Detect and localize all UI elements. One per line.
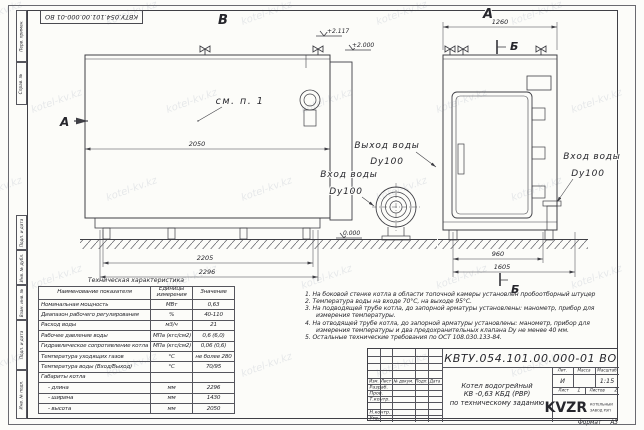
water-inlet-label: Вход воды	[320, 170, 377, 180]
control-box	[527, 76, 551, 90]
burner-flange	[372, 183, 420, 240]
tb-mass-value	[573, 374, 595, 387]
spec-table: Техническая характеристика Наименование …	[38, 277, 234, 414]
spec-header-row: Наименование показателя Единицы измерени…	[39, 287, 235, 300]
spec-cell: Температура воды (Вход/Выход)	[39, 362, 151, 372]
spec-col-header: Единицы измерения	[151, 287, 193, 300]
spec-cell: Гидравлическое сопротивление котла	[39, 341, 151, 351]
water-inlet-right-dn: Dy100	[571, 169, 604, 179]
flue-elbow	[300, 90, 320, 110]
dim-1260: 1260	[492, 18, 509, 26]
doc-number: КВТУ.054.101.00.000-01 ВО	[442, 349, 619, 367]
elevation-zero-value: 0.000	[343, 230, 360, 237]
tb-role: Утв.	[368, 416, 387, 421]
spec-cell	[193, 372, 235, 382]
spec-row: - ширинамм1430	[39, 393, 235, 403]
spec-cell: 2296	[193, 383, 235, 393]
spec-cell: Диапазон рабочего регулирования	[39, 310, 151, 320]
spec-row: Температура воды (Вход/Выход)°С70/95	[39, 362, 235, 372]
spec-row: - длинамм2296	[39, 383, 235, 393]
spec-cell: Рабочее давление воды	[39, 331, 151, 341]
tb-role: Н.контр.	[368, 410, 387, 415]
spec-cell: 70/95	[193, 362, 235, 372]
tb-scale-value: 1:15	[595, 374, 619, 387]
spec-cell: Расход воды	[39, 320, 151, 330]
spec-cell: МВт	[151, 300, 193, 310]
spec-cell: м3/ч	[151, 320, 193, 330]
spec-cell: мм	[151, 393, 193, 403]
spec-cell: Габариты котла	[39, 372, 151, 382]
valve-icon	[536, 46, 546, 55]
tb-col-podp: Подп.	[417, 379, 426, 383]
water-inlet-dn: Dy100	[329, 187, 362, 197]
base-frame	[95, 218, 320, 228]
kvzr-logo-text: KVZR	[545, 400, 588, 416]
tb-sheets: Листов2	[585, 387, 619, 394]
view-b-label: В	[218, 13, 228, 28]
product-name: Котел водогрейный КВ -0,63 КБД (РВР) по …	[442, 367, 552, 422]
spec-table-title: Техническая характеристика	[38, 277, 234, 284]
spec-cell: - высота	[39, 403, 151, 413]
boiler-body-front	[443, 55, 557, 230]
water-outlet-dn: Dy100	[370, 157, 403, 167]
format-label: Формат А3	[548, 420, 618, 426]
tb-lit-value: И	[552, 374, 573, 387]
tb-role	[368, 403, 387, 408]
spec-cell: 1430	[193, 393, 235, 403]
spec-cell: Номинальная мощность	[39, 300, 151, 310]
ground-hatch	[80, 240, 437, 249]
spec-row: Номинальная мощностьМВт0,63	[39, 300, 235, 310]
spec-cell: °С	[151, 362, 193, 372]
tb-col-data: Дата	[430, 379, 440, 383]
ground-hatch	[438, 240, 588, 249]
spec-cell: - ширина	[39, 393, 151, 403]
kvzr-logo-subtext: КОТЕЛЬНЫЙ ЗАВОД РЭП	[590, 402, 629, 413]
spec-cell: Температура уходящих газов	[39, 351, 151, 361]
spec-cell: - длина	[39, 383, 151, 393]
inlet-flange	[543, 201, 561, 206]
water-inlet-right-label: Вход воды	[563, 152, 620, 162]
note-line: 5. Остальные технические требования по О…	[305, 334, 619, 341]
spec-row: Гидравлическое сопротивление котлаМПа (к…	[39, 341, 235, 351]
hinge	[532, 147, 545, 159]
section-b-top-label: Б	[510, 40, 518, 53]
elevation-mid-value: +2.000	[352, 42, 374, 49]
spec-row: Температура уходящих газов°Сне более 280	[39, 351, 235, 361]
spec-col-header: Наименование показателя	[39, 287, 151, 300]
spec-col-header: Значение	[193, 287, 235, 300]
note-line: 4. На отводящей трубе котла, до запорной…	[305, 320, 619, 334]
tb-role: Пров.	[368, 391, 387, 396]
spec-cell: мм	[151, 403, 193, 413]
tb-scale-header: Масштаб	[599, 368, 615, 373]
drawing-sheet: kotel-kv.kzkotel-kv.kzkotel-kv.kzkotel-k…	[0, 0, 644, 430]
spec-row: Диапазон рабочего регулирования%40-110	[39, 310, 235, 320]
kvzr-logo: KVZR КОТЕЛЬНЫЙ ЗАВОД РЭП	[552, 394, 619, 422]
spec-cell: мм	[151, 383, 193, 393]
title-block: Изм. Лист № докум. Подп. Дата Разраб. Пр…	[367, 348, 618, 421]
valve-icon	[458, 46, 468, 55]
spec-row: Рабочее давление водыМПа (кгс/см2)0,6 (6…	[39, 331, 235, 341]
spec-cell: 2050	[193, 403, 235, 413]
tb-col-list: Лист	[382, 379, 390, 383]
water-outlet-label: Выход воды	[354, 141, 419, 151]
dim-1605: 1605	[494, 263, 511, 271]
section-a-label: А	[59, 115, 69, 129]
tb-col-docnum: № докум.	[396, 379, 412, 383]
spec-cell: °С	[151, 351, 193, 361]
spec-row: - высотамм2050	[39, 403, 235, 413]
inlet-pipe	[547, 206, 557, 230]
dim-2205: 2205	[197, 254, 214, 262]
tb-sheet: Лист1	[552, 387, 585, 394]
boiler-body-side	[85, 55, 330, 218]
tb-mass-header: Масса	[577, 368, 592, 373]
valve-icon	[313, 46, 323, 55]
door-handle	[458, 144, 464, 174]
spec-cell: 0,06 (0,6)	[193, 341, 235, 351]
spec-cell: 40-110	[193, 310, 235, 320]
spec-cell: не более 280	[193, 351, 235, 361]
spec-cell: 0,6 (6,0)	[193, 331, 235, 341]
spec-row: Расход водым3/ч21	[39, 320, 235, 330]
tb-lit-header: Лит.	[555, 368, 569, 373]
spec-cell: 21	[193, 320, 235, 330]
dim-960: 960	[492, 250, 504, 258]
spec-cell: МПа (кгс/см2)	[151, 341, 193, 351]
elevation-top-value: +2.117	[327, 28, 349, 35]
spec-cell: %	[151, 310, 193, 320]
see-note-label: см. п. 1	[216, 96, 265, 107]
dim-2296: 2296	[199, 268, 216, 276]
valve-icon	[200, 46, 210, 55]
spec-row: Габариты котла	[39, 372, 235, 382]
spec-cell: МПа (кгс/см2)	[151, 331, 193, 341]
tb-role: Т.контр.	[368, 397, 387, 402]
spec-cell: 0,63	[193, 300, 235, 310]
hinge	[532, 108, 545, 120]
tb-role: Разраб.	[368, 385, 387, 390]
technical-notes: 1. На боковой стенке котла в области топ…	[305, 291, 619, 341]
hinge	[532, 186, 545, 198]
note-line: 3. На подводящей трубе котла, до запорно…	[305, 305, 619, 319]
dim-2050: 2050	[189, 140, 206, 148]
valve-icon	[445, 46, 455, 55]
spec-cell	[151, 372, 193, 382]
tb-col-izm: Изм.	[370, 379, 378, 383]
